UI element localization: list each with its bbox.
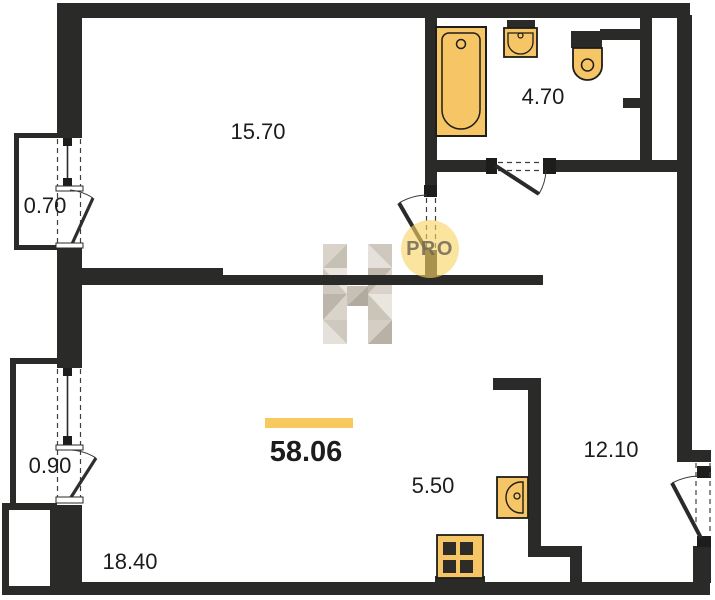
door-right-balcony xyxy=(672,476,701,538)
kitchen-sink-icon xyxy=(497,477,528,518)
label-bathroom: 4.70 xyxy=(510,86,576,108)
label-room-top: 15.70 xyxy=(222,121,294,143)
label-balcony-lower: 0.90 xyxy=(20,455,80,477)
label-balcony-upper: 0.70 xyxy=(16,195,74,217)
window-lower-balcony xyxy=(56,368,96,503)
label-room-right: 12.10 xyxy=(572,439,650,461)
label-kitchen: 5.50 xyxy=(402,475,464,497)
stove-icon xyxy=(435,535,485,585)
toilet-icon xyxy=(571,31,602,80)
bathtub-icon xyxy=(436,27,486,136)
label-living-room: 18.40 xyxy=(92,551,168,573)
bath-sink-icon xyxy=(504,20,537,57)
label-total-area: 58.06 xyxy=(256,438,356,467)
door-interior xyxy=(399,195,428,253)
plan-overlay xyxy=(0,0,715,600)
total-area-accent-bar xyxy=(265,418,353,428)
floor-plan: PRO 15.70 4.70 0.70 0.90 18.40 5.50 12.1… xyxy=(0,0,715,600)
opening-dashes xyxy=(58,139,711,535)
